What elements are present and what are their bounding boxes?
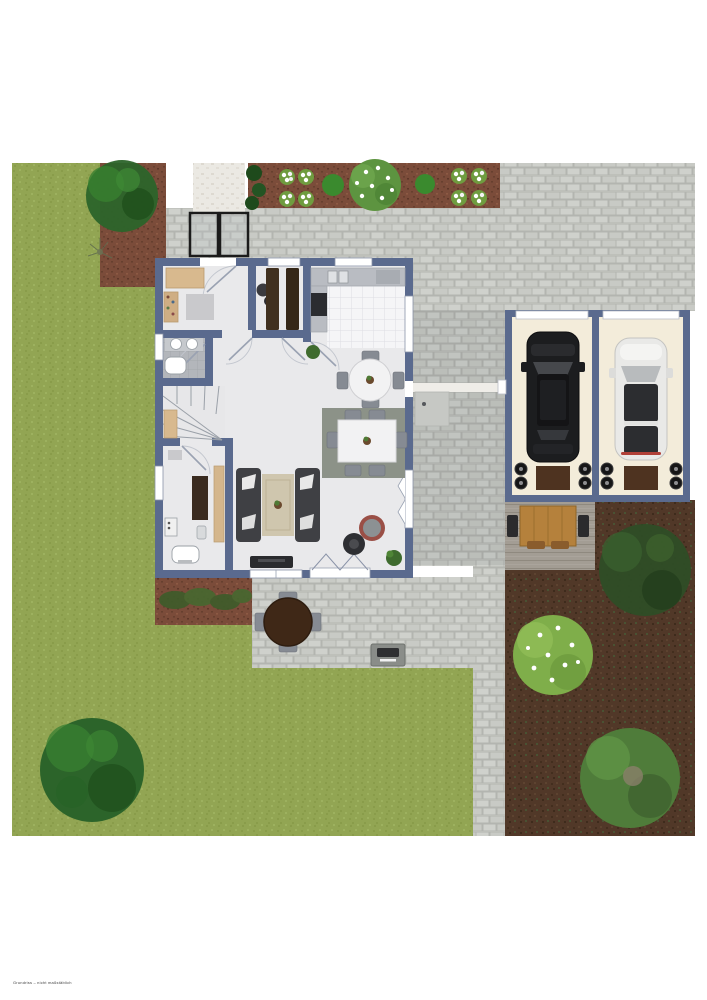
sofa-west	[236, 468, 261, 542]
entry-walkway	[193, 163, 245, 215]
tree-southeast	[580, 728, 680, 828]
flowering-bush-southeast	[513, 615, 593, 695]
utility-window	[155, 466, 163, 500]
pavers-driveway-northeast	[500, 163, 695, 311]
kitchen-window-east	[405, 296, 413, 352]
floor-plan-page: Grundriss – nicht maßstäblich	[0, 0, 707, 1000]
storage-mat-left	[536, 466, 570, 490]
pantry-window	[268, 258, 300, 266]
patio-round-table	[264, 598, 312, 646]
cooktop	[311, 293, 327, 316]
pantry-shelf-1	[266, 268, 279, 330]
nook-plant	[306, 345, 320, 359]
side-walkway	[413, 383, 505, 392]
pantry-shelf-2	[286, 268, 299, 330]
canopy-panel-right	[220, 213, 248, 256]
living-window-east	[405, 470, 413, 528]
lawn-tree-southwest	[40, 718, 144, 822]
side-door-east[interactable]	[405, 381, 413, 397]
kitchen-sink-2	[339, 271, 348, 283]
kitchen-appliance	[376, 270, 400, 284]
grill	[371, 644, 405, 666]
garage-door-right	[603, 311, 679, 319]
small-unit	[197, 526, 206, 539]
pavers-south-path	[473, 565, 505, 836]
large-bush-northwest	[86, 160, 158, 232]
wall-appliance	[165, 518, 177, 536]
side-entrance-pad	[415, 392, 449, 426]
small-bush	[322, 174, 344, 196]
hall-sideboard	[166, 268, 204, 288]
utility-desk	[192, 476, 208, 520]
sofa-east	[295, 468, 320, 542]
tall-cabinet	[214, 466, 224, 542]
utility-doormat	[168, 450, 182, 460]
plan-caption: Grundriss – nicht maßstäblich	[13, 981, 72, 985]
bathtub	[165, 357, 186, 374]
garage	[498, 310, 690, 502]
garage-side-door	[498, 380, 506, 394]
hall-doormat	[186, 294, 214, 320]
garage-door-left	[516, 311, 588, 319]
terrace-chair-east	[578, 515, 589, 537]
sink-2	[187, 339, 198, 350]
sink-1	[171, 339, 182, 350]
white-car	[609, 338, 673, 460]
terrace-chair-south-1	[527, 541, 545, 549]
boot-scraper	[422, 402, 426, 406]
kitchen-sink-1	[328, 271, 337, 283]
hall-cabinet	[164, 410, 177, 438]
flowering-shrub-north	[349, 159, 401, 211]
terrace-chair-south-2	[551, 541, 569, 549]
site-plan-drawing	[0, 0, 707, 1000]
terrace-chair-west	[507, 515, 518, 537]
kitchen-tile-floor	[327, 286, 405, 348]
small-bush-2	[415, 174, 435, 194]
shoe-shelf	[164, 292, 178, 322]
black-car	[521, 332, 585, 462]
storage-mat-right	[624, 466, 658, 490]
house	[155, 213, 413, 578]
pavers-shade	[413, 310, 505, 565]
dark-bush-southeast	[599, 524, 691, 616]
entrance-threshold	[200, 258, 236, 266]
bathroom-window	[155, 334, 163, 360]
canopy-panel-left	[190, 213, 218, 256]
kitchen-window-north	[335, 258, 372, 266]
